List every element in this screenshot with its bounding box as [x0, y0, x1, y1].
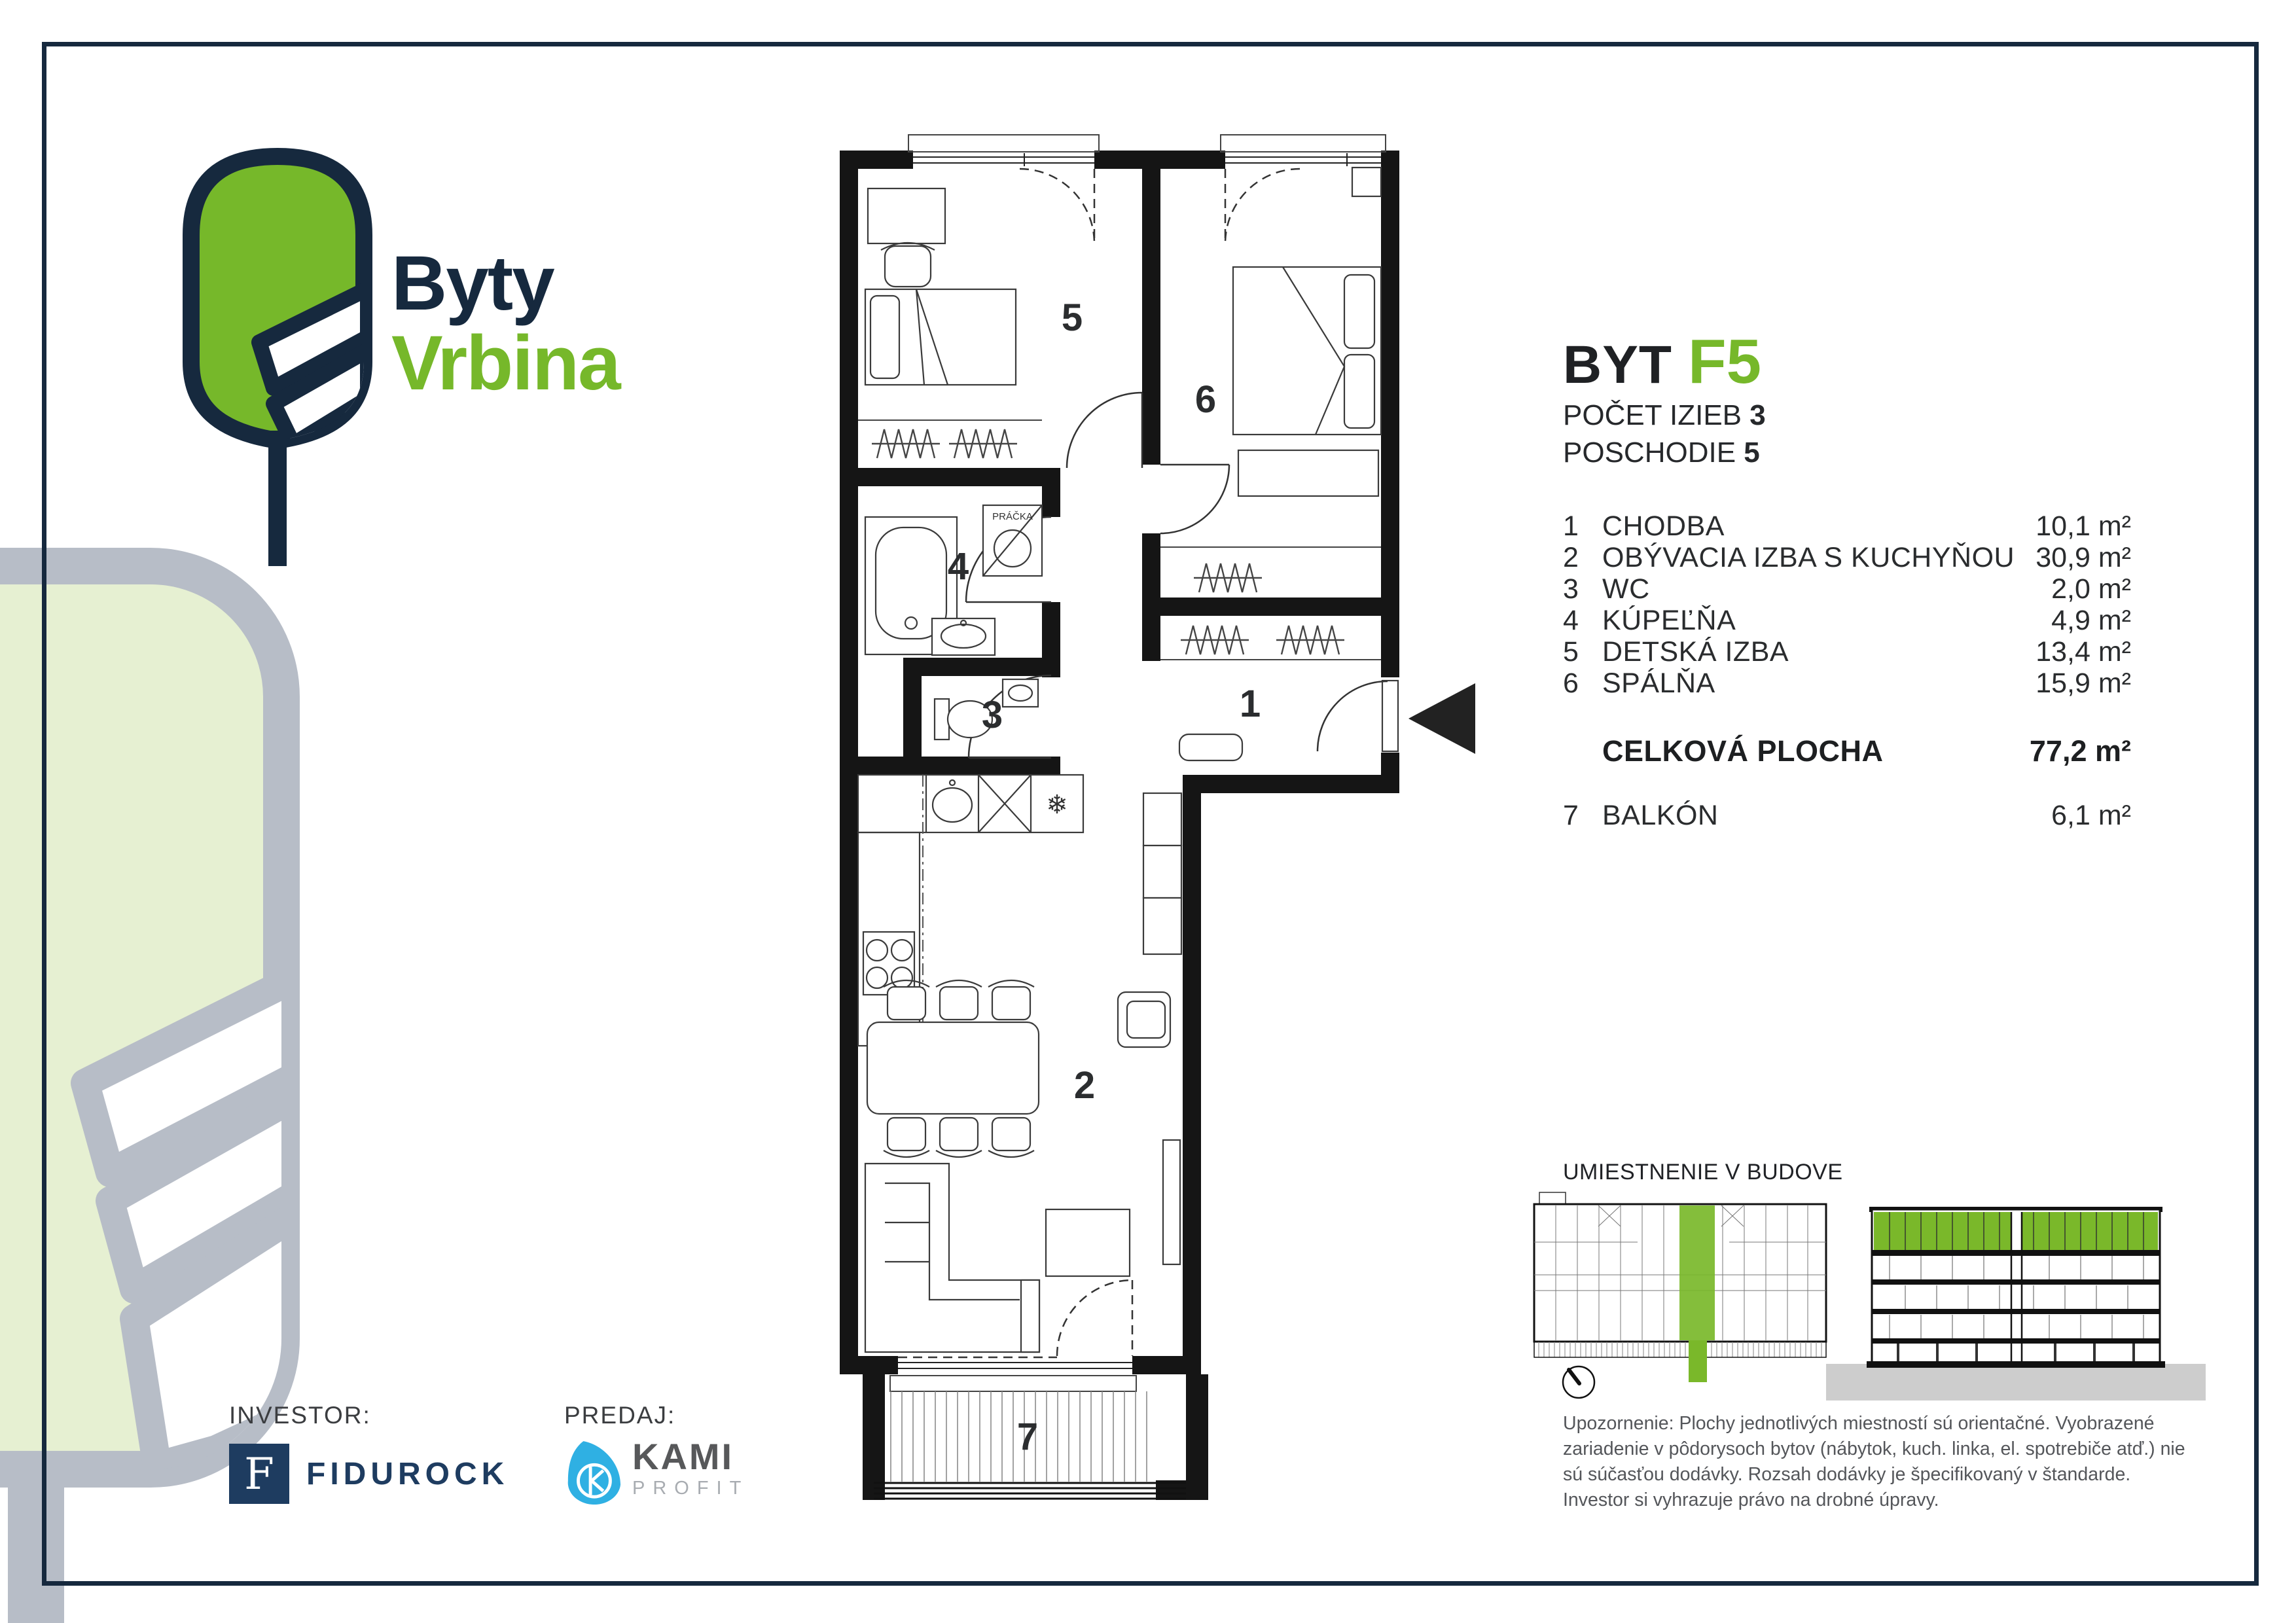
coffee-table	[1046, 1209, 1130, 1276]
byty-vrbina-leaf-icon	[182, 147, 373, 566]
legend-row: 1 CHODBA 10,1 m²	[1563, 510, 2131, 542]
double-bed	[1233, 168, 1381, 435]
fridge-snowflake-icon: ❄	[1046, 791, 1068, 819]
room-area: 4,9 m²	[2051, 605, 2131, 637]
plan-label-7: 7	[1017, 1416, 1038, 1458]
room-area: 15,9 m²	[2036, 668, 2131, 700]
fidurock-name: FIDUROCK	[306, 1456, 509, 1492]
single-bed	[865, 289, 1016, 385]
legend-row: 2 OBÝVACIA IZBA S KUCHYŇOU 30,9 m²	[1563, 542, 2131, 573]
legend-total-row: CELKOVÁ PLOCHA 77,2 m²	[1563, 734, 2131, 766]
room-area: 2,0 m²	[2051, 573, 2131, 605]
kami-profit-logo: KAMI PROFIT	[564, 1438, 749, 1508]
wc-sink	[1003, 679, 1038, 707]
plan-label-4: 4	[948, 545, 969, 588]
floor-plan: PRÁČKA ❄	[821, 128, 1496, 1535]
legend-row: 5 DETSKÁ IZBA 13,4 m²	[1563, 636, 2131, 668]
building-floorplan-mini	[1533, 1191, 1827, 1384]
room-number: 2	[1563, 542, 1602, 574]
kami-sub: PROFIT	[632, 1478, 749, 1499]
room-number: 7	[1563, 800, 1602, 832]
north-indicator-icon	[1560, 1364, 1597, 1400]
total-area: 77,2 m²	[2030, 734, 2131, 768]
plan-label-1: 1	[1240, 683, 1261, 725]
room-number: 5	[1563, 636, 1602, 668]
armchair	[1118, 992, 1170, 1047]
room-area: 13,4 m²	[2036, 636, 2131, 668]
rooms-count-line: POČET IZIEB 3	[1563, 397, 1766, 434]
door-bedroom	[1160, 465, 1229, 533]
tall-cabinets	[1143, 793, 1181, 954]
plan-label-6: 6	[1195, 378, 1216, 421]
investor-label: INVESTOR:	[229, 1402, 371, 1429]
door-childrens-room	[1067, 393, 1142, 468]
legend-row: 3 WC 2,0 m²	[1563, 573, 2131, 605]
desk-and-chair	[868, 188, 945, 287]
sideboard	[1238, 450, 1378, 496]
room-label: OBÝVACIA IZBA S KUCHYŇOU	[1602, 542, 2036, 574]
fidurock-logo: F FIDUROCK	[229, 1444, 509, 1504]
room-number: 6	[1563, 668, 1602, 700]
washer-label: PRÁČKA	[992, 511, 1033, 522]
rooms-count-label: POČET IZIEB	[1563, 399, 1742, 431]
unit-code: F5	[1688, 326, 1761, 398]
room-number: 4	[1563, 605, 1602, 637]
logo-wordmark: Byty Vrbina	[391, 243, 620, 403]
logo-line-vrbina: Vrbina	[391, 323, 620, 403]
predaj-label: PREDAJ:	[564, 1402, 675, 1429]
logo-line-byty: Byty	[391, 243, 620, 323]
kami-name: KAMI	[632, 1438, 749, 1475]
tv-board	[1163, 1140, 1180, 1264]
room-label: BALKÓN	[1602, 800, 2051, 832]
floor-label: POSCHODIE	[1563, 437, 1736, 469]
room-area: 30,9 m²	[2036, 542, 2131, 574]
total-label: CELKOVÁ PLOCHA	[1602, 734, 2030, 768]
plan-label-2: 2	[1074, 1064, 1095, 1107]
washing-machine-icon: PRÁČKA	[983, 505, 1042, 576]
room-area: 10,1 m²	[2036, 510, 2131, 543]
location-title: UMIESTNENIE V BUDOVE	[1563, 1160, 1843, 1185]
room-number: 3	[1563, 573, 1602, 605]
room-legend: 1 CHODBA 10,1 m² 2 OBÝVACIA IZBA S KUCHY…	[1563, 510, 2131, 831]
room-label: WC	[1602, 573, 2051, 605]
legend-balcony-row: 7 BALKÓN 6,1 m²	[1563, 800, 2131, 831]
entrance-door	[1318, 681, 1398, 751]
unit-meta: POČET IZIEB 3 POSCHODIE 5	[1563, 397, 1766, 471]
unit-title: BYT F5	[1563, 326, 1761, 398]
entrance-arrow-icon	[1408, 683, 1475, 754]
sofa	[865, 1164, 1039, 1352]
floor-line: POSCHODIE 5	[1563, 434, 1766, 471]
room-label: SPÁLŇA	[1602, 668, 2036, 700]
rooms-count-value: 3	[1749, 399, 1765, 431]
byt-label: BYT	[1563, 334, 1672, 396]
disclaimer-text: Upozornenie: Plochy jednotlivých miestno…	[1563, 1411, 2186, 1513]
dining-table	[867, 980, 1039, 1157]
legend-row: 4 KÚPEĽŇA 4,9 m²	[1563, 605, 2131, 636]
legend-row: 6 SPÁLŇA 15,9 m²	[1563, 668, 2131, 699]
room-label: KÚPEĽŇA	[1602, 605, 2051, 637]
room-label: CHODBA	[1602, 510, 2036, 543]
balcony-door	[1057, 1280, 1132, 1368]
room-label: DETSKÁ IZBA	[1602, 636, 2036, 668]
room-area: 6,1 m²	[2051, 800, 2131, 832]
room-number: 1	[1563, 510, 1602, 543]
bathroom-sink	[932, 618, 995, 655]
floor-value: 5	[1744, 437, 1759, 469]
plan-label-5: 5	[1062, 296, 1083, 339]
plan-label-3: 3	[982, 694, 1003, 736]
building-section-mini	[1826, 1203, 2206, 1400]
hall-bench	[1179, 734, 1242, 760]
fidurock-monogram-icon: F	[229, 1444, 289, 1504]
kami-drop-icon	[564, 1438, 622, 1508]
brochure-page: Byty Vrbina BYT F5 POČET IZIEB 3 POSCHOD…	[0, 0, 2296, 1623]
